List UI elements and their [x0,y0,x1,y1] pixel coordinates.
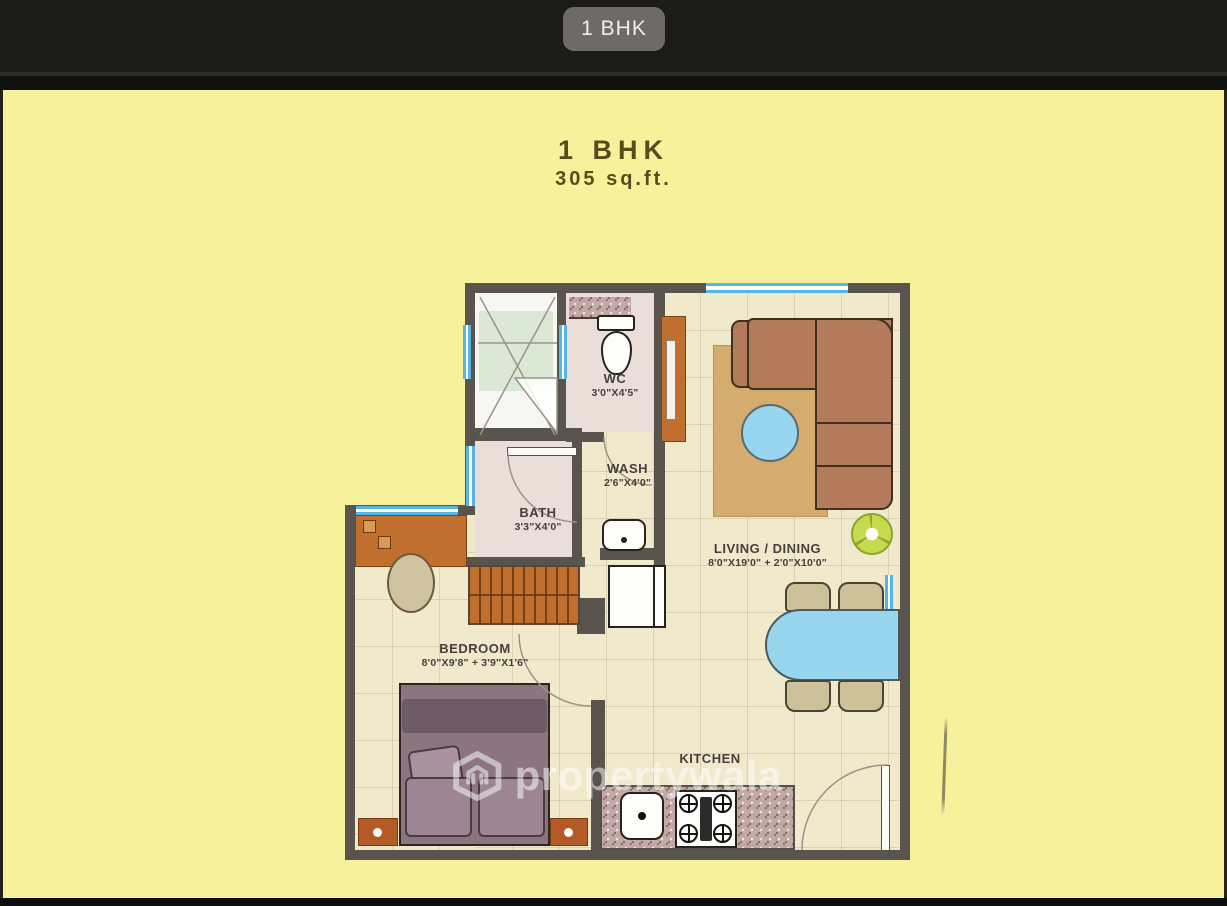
plan-title: 1 BHK [0,135,1227,166]
floorplan-drawing: WC 3'0"X4'5" WASH 2'6"X4'0" BATH 3'3"X4'… [345,283,910,860]
living-dining-label: LIVING / DINING 8'0"X19'0" + 2'0"X10'0" [675,541,860,570]
doors-and-hatching-overlay [345,283,910,860]
bath-label: BATH 3'3"X4'0" [493,505,583,534]
bottom-bar [0,898,1227,906]
bhk-tab-button[interactable]: 1 BHK [563,7,665,51]
screenshot-root: 1 BHK 1 BHK 305 sq.ft. [0,0,1227,906]
page-left-edge [0,90,3,898]
top-toolbar: 1 BHK [0,0,1227,90]
plan-area: 305 sq.ft. [0,168,1227,191]
kitchen-label: KITCHEN [665,751,755,767]
wash-label: WASH 2'6"X4'0" [580,461,675,490]
wc-label: WC 3'0"X4'5" [570,371,660,400]
bedroom-label: BEDROOM 8'0"X9'8" + 3'9"X1'6" [375,641,575,670]
